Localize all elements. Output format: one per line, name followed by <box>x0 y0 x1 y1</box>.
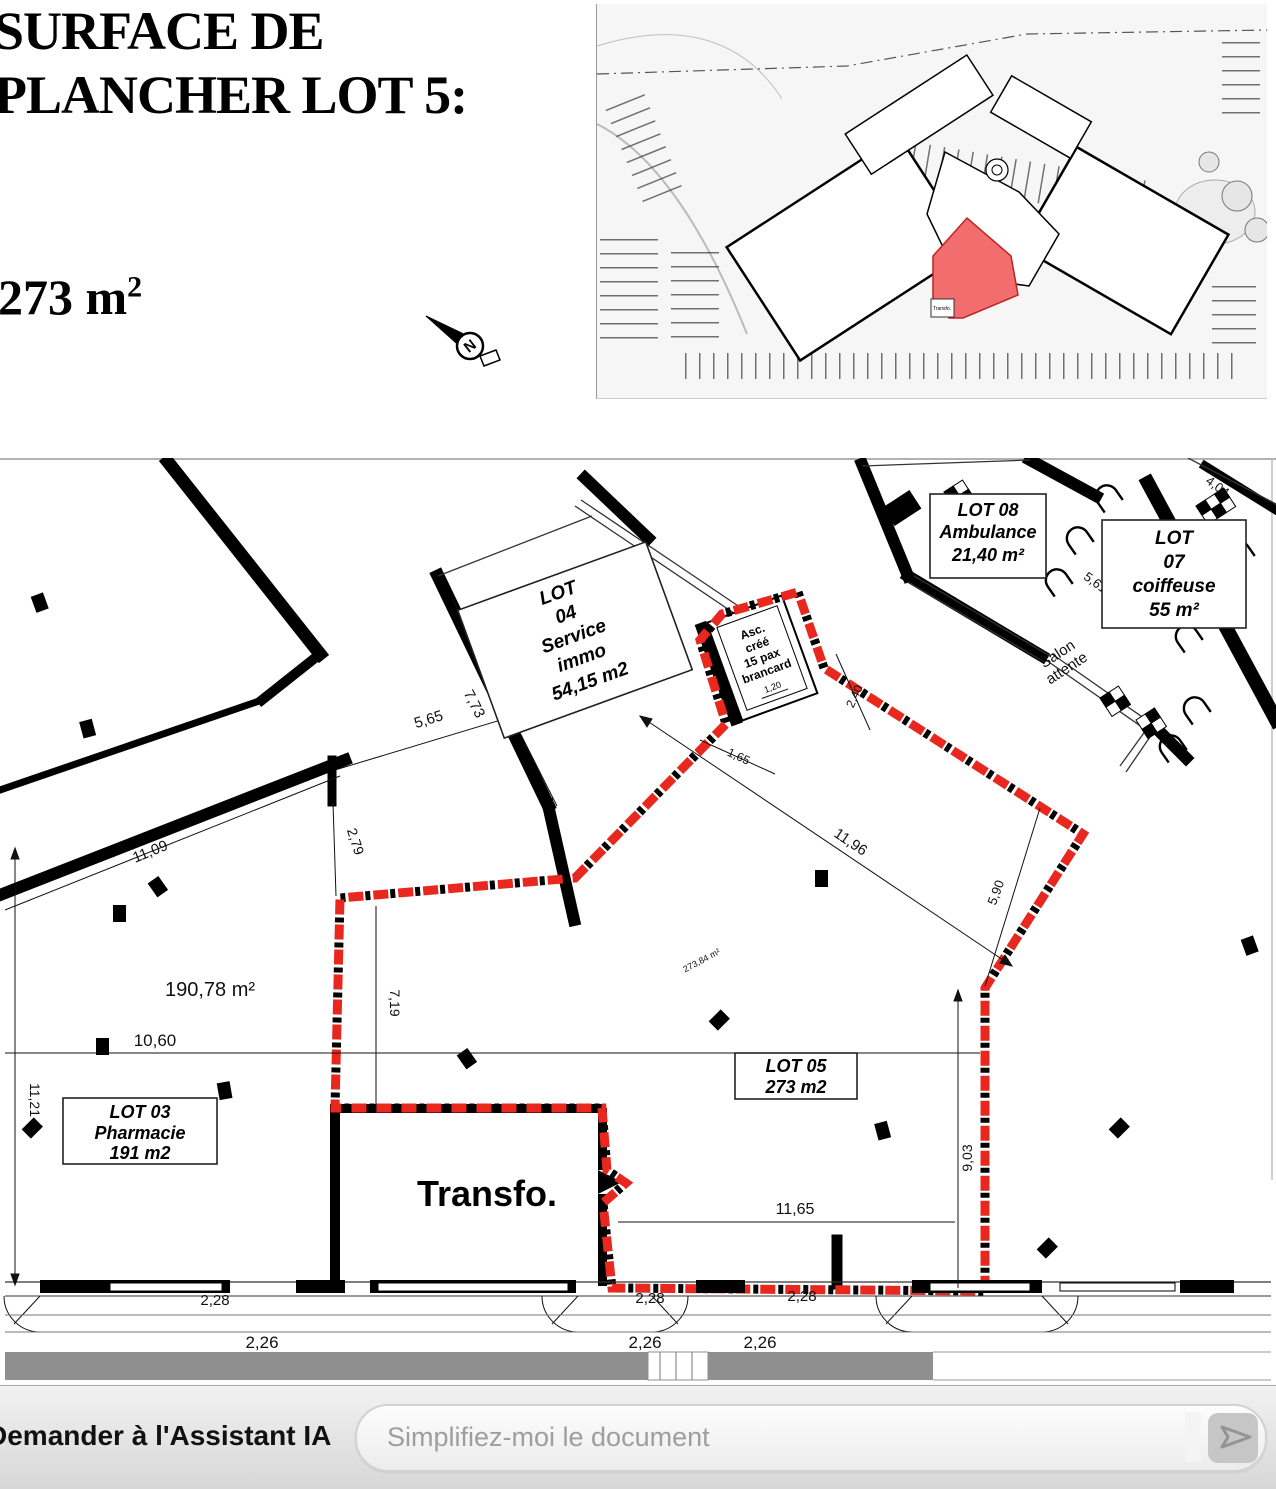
lot08-l2: Ambulance <box>938 522 1036 542</box>
site-buildings <box>727 55 1229 360</box>
dim-2-28-b: 2,28 <box>635 1290 664 1307</box>
dim-5-90: 5,90 <box>984 878 1007 907</box>
lot07-l3: coiffeuse <box>1132 576 1216 597</box>
lot05-l1: LOT 05 <box>765 1056 827 1076</box>
area-number: 273 m <box>0 269 127 325</box>
north-compass-icon: N <box>420 308 512 372</box>
dim-11-21: 11,21 <box>27 1083 43 1117</box>
floor-plan-page: Asc. créé 15 pax brancard 1,20 <box>0 458 1276 1385</box>
page-title-line2: PLANCHER LOT 5: <box>0 64 467 128</box>
dim-9-03: 9,03 <box>959 1144 975 1171</box>
dim-11-96: 11,96 <box>831 825 871 859</box>
site-transfo-label: Transfo. <box>933 306 951 312</box>
area-exponent: 2 <box>127 270 142 303</box>
page-title: SURFACE DE PLANCHER LOT 5: <box>0 0 467 127</box>
dim-2-28-a: 2,28 <box>200 1292 229 1309</box>
lot05-l2: 273 m2 <box>764 1077 826 1097</box>
lot03-l1: LOT 03 <box>109 1102 170 1122</box>
page-title-line1: SURFACE DE <box>0 0 467 64</box>
lot08-l3: 21,40 m² <box>951 545 1025 565</box>
area-value: 273 m2 <box>0 268 142 326</box>
lot05-label-box: LOT 05 273 m2 <box>735 1053 857 1099</box>
door-arcs <box>4 1296 1078 1332</box>
dim-2-28-c: 2,28 <box>787 1288 816 1305</box>
ai-assistant-label[interactable]: Demander à l'Assistant IA <box>0 1420 331 1452</box>
dim-5-65: 5,65 <box>412 707 445 732</box>
dim-1-65: 1,65 <box>725 745 752 768</box>
ai-assistant-bar: Demander à l'Assistant IA Simplifiez-moi… <box>0 1385 1276 1489</box>
lot07-l1: LOT <box>1155 528 1194 549</box>
transfo-room-label: Transfo. <box>417 1173 557 1214</box>
dim-2-79: 2,79 <box>344 826 368 857</box>
dim-11-65: 11,65 <box>776 1201 815 1218</box>
send-icon <box>1214 1415 1258 1459</box>
elevator-shaft: Asc. créé 15 pax brancard 1,20 <box>695 594 818 727</box>
lot03-l3: 191 m2 <box>109 1143 170 1163</box>
ai-prompt-input[interactable]: Simplifiez-moi le document <box>355 1404 1267 1472</box>
lot08-label-box: LOT 08 Ambulance 21,40 m² <box>930 494 1046 578</box>
site-plan-drawing: Transfo. <box>597 4 1267 398</box>
site-plan-thumbnail: Transfo. <box>596 4 1267 399</box>
zone-area-190: 190,78 m² <box>165 979 255 1001</box>
dim-2-26-c: 2,26 <box>743 1333 776 1352</box>
lot08-l1: LOT 08 <box>957 500 1018 520</box>
lot03-label-box: LOT 03 Pharmacie 191 m2 <box>63 1098 217 1164</box>
dim-7-73: 7,73 <box>460 687 488 721</box>
lot07-l4: 55 m² <box>1149 600 1199 621</box>
dim-2-26-a: 2,26 <box>245 1333 278 1352</box>
ai-input-placeholder: Simplifiez-moi le document <box>387 1406 710 1468</box>
input-divider <box>1185 1412 1201 1462</box>
dim-10-60: 10,60 <box>134 1031 177 1050</box>
dim-2-26-b: 2,26 <box>628 1333 661 1352</box>
zone-area-273: 273,84 m² <box>681 946 721 974</box>
dim-7-19: 7,19 <box>387 989 403 1016</box>
lot07-l2: 07 <box>1163 552 1186 573</box>
send-button[interactable] <box>1208 1413 1258 1463</box>
lot07-label-box: LOT 07 coiffeuse 55 m² <box>1102 520 1246 628</box>
lot03-l2: Pharmacie <box>94 1123 185 1143</box>
lot04-label-box: LOT 04 Service immo 54,15 m2 <box>458 542 692 738</box>
floor-plan-drawing: Asc. créé 15 pax brancard 1,20 <box>0 458 1276 1385</box>
